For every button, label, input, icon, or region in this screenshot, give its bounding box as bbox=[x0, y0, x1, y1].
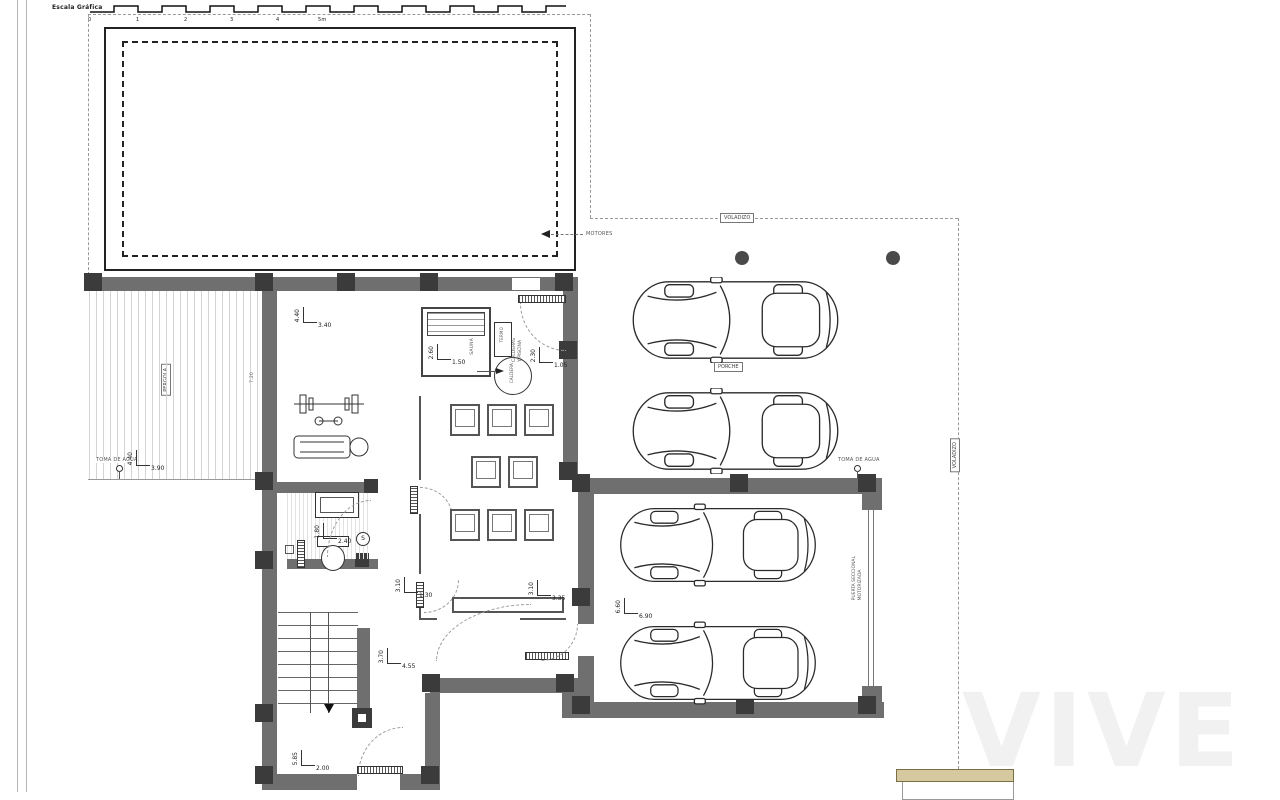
round-column bbox=[735, 251, 749, 265]
column bbox=[858, 474, 876, 492]
sauna-bench bbox=[427, 312, 485, 336]
towel-rail bbox=[297, 540, 305, 568]
dimension-terrace: 4.403.90 bbox=[126, 444, 170, 472]
column bbox=[730, 474, 748, 492]
column bbox=[255, 766, 273, 784]
terrace-edge-line bbox=[88, 479, 264, 480]
column bbox=[556, 674, 574, 692]
sheet-edge-line bbox=[26, 0, 27, 792]
door-opening-top-wall bbox=[512, 278, 540, 290]
column bbox=[572, 588, 590, 606]
dimension-lounge-door: 3.101.30 bbox=[394, 571, 438, 599]
toma-de-agua-right-symbol-stem bbox=[857, 471, 858, 478]
column bbox=[858, 696, 876, 714]
armchair bbox=[487, 509, 517, 541]
armchair bbox=[471, 456, 501, 488]
voladizo-dashed-line bbox=[590, 218, 958, 219]
column bbox=[572, 696, 590, 714]
dimension-garage: 6.606.90 bbox=[614, 592, 658, 620]
voladizo-right-label: VOLADIZO bbox=[950, 438, 960, 472]
dimension-sauna: 2.601.50 bbox=[427, 338, 471, 366]
column bbox=[255, 551, 273, 569]
stair-direction-arrow bbox=[324, 704, 334, 713]
boundary-dashed bbox=[88, 14, 590, 15]
staircase bbox=[278, 612, 358, 713]
sectional-door-line bbox=[873, 510, 874, 686]
dimension-lounge: 3.103.35 bbox=[527, 574, 571, 602]
dimension-gym: 4.403.40 bbox=[293, 301, 337, 329]
motores-arrow bbox=[541, 230, 550, 238]
scale-tick: 3 bbox=[230, 17, 233, 23]
watermark: VIVE bbox=[962, 672, 1244, 791]
car-icon bbox=[628, 277, 843, 363]
armchair bbox=[524, 404, 554, 436]
scale-tick: 2 bbox=[184, 17, 187, 23]
scale-tick: 5m bbox=[318, 17, 326, 23]
boiler-tank: CALDERA bbox=[494, 357, 532, 395]
column bbox=[337, 273, 355, 291]
armchair bbox=[487, 404, 517, 436]
door-arc bbox=[436, 604, 531, 661]
boundary-dashed bbox=[590, 14, 591, 218]
motores-leader-line bbox=[551, 234, 583, 235]
armchair bbox=[450, 404, 480, 436]
sectional-door-label: PUERTA SECCIONAL MOTORIZADA bbox=[852, 556, 864, 600]
door-leaf bbox=[410, 486, 418, 514]
armchair bbox=[450, 509, 480, 541]
motores-label: MOTORES bbox=[586, 231, 612, 237]
wall-store-bottom-left bbox=[262, 774, 357, 790]
wall-garage-door-jamb-top bbox=[862, 494, 882, 510]
stair-stringer bbox=[328, 612, 329, 713]
stair-stringer bbox=[310, 612, 311, 713]
door-arc bbox=[541, 624, 578, 661]
voladizo-dashed-line bbox=[958, 218, 959, 774]
wall-stairs-right bbox=[357, 628, 370, 716]
column bbox=[255, 273, 273, 291]
floor-plan: Escala Gráfica 0 1 2 3 4 5m MOTORES VOLA… bbox=[0, 0, 1280, 800]
toma-de-agua-left-symbol-stem bbox=[119, 471, 120, 479]
pool-inner-dashed bbox=[122, 41, 558, 257]
boiler-room-label: CALDERAS Y PISCINA bbox=[512, 338, 524, 362]
partition-lounge bbox=[419, 514, 421, 574]
column bbox=[422, 674, 440, 692]
car-icon bbox=[618, 621, 818, 705]
door-arc bbox=[420, 487, 453, 518]
scale-tick: 4 bbox=[276, 17, 279, 23]
column bbox=[255, 472, 273, 490]
partition-lounge-bottom bbox=[421, 618, 437, 620]
water-heater-cabinet: TERMO bbox=[494, 322, 512, 357]
toma-de-agua-right-label: TOMA DE AGUA bbox=[838, 457, 880, 463]
scale-tick: 1 bbox=[136, 17, 139, 23]
round-column bbox=[886, 251, 900, 265]
column bbox=[555, 273, 573, 291]
level-mark: 7.20 bbox=[250, 372, 256, 383]
car-icon bbox=[618, 503, 818, 587]
terrace-decking bbox=[89, 291, 262, 480]
column bbox=[364, 479, 378, 493]
gym-equipment-icon bbox=[286, 388, 374, 474]
dimension-store: 5.852.00 bbox=[291, 744, 335, 772]
sectional-door-line bbox=[868, 510, 869, 686]
voladizo-top-label: VOLADIZO bbox=[720, 213, 754, 223]
column bbox=[255, 704, 273, 722]
column bbox=[421, 766, 439, 784]
column-hollow-core bbox=[358, 714, 366, 722]
wall-top bbox=[88, 277, 577, 291]
sheet-edge-line bbox=[17, 0, 18, 792]
armchair bbox=[524, 509, 554, 541]
boiler-arrow bbox=[496, 368, 504, 374]
armchair bbox=[508, 456, 538, 488]
car-icon bbox=[628, 388, 843, 474]
door-leaf bbox=[357, 766, 403, 774]
boundary-dashed bbox=[88, 14, 89, 280]
dimension-stairs: 3.704.55 bbox=[377, 642, 421, 670]
column bbox=[572, 474, 590, 492]
dimension-boiler: 2.301.05 bbox=[529, 341, 573, 369]
column bbox=[420, 273, 438, 291]
porche-label: PORCHE bbox=[714, 362, 743, 372]
boiler-arrow-line bbox=[477, 371, 497, 372]
radiator bbox=[518, 295, 566, 303]
column bbox=[84, 273, 102, 291]
partition-lounge bbox=[419, 396, 421, 480]
floor-drain bbox=[285, 545, 294, 554]
